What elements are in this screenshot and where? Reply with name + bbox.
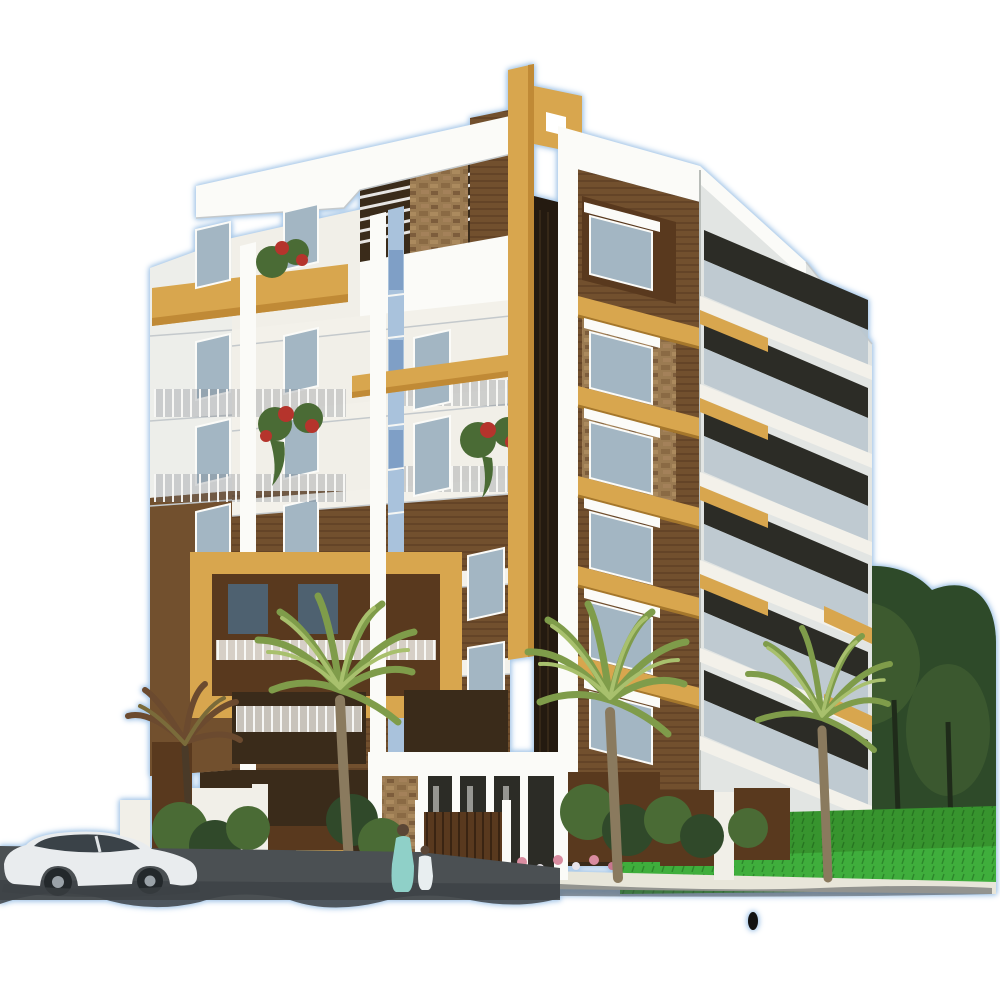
right-tower: [558, 126, 700, 800]
left-tower: [152, 106, 530, 770]
woman-head: [397, 824, 409, 836]
child-head: [421, 846, 430, 855]
right-pilaster: [558, 150, 578, 774]
black-dot-artifact: [748, 912, 758, 930]
portico-beam: [368, 752, 568, 776]
architectural-render: 3D architectural rendering of a five-sto…: [0, 0, 1000, 1000]
render-canvas: 3D architectural rendering of a five-sto…: [0, 0, 1000, 1000]
child-figure: [418, 856, 433, 891]
recessed-strip: [534, 196, 558, 772]
